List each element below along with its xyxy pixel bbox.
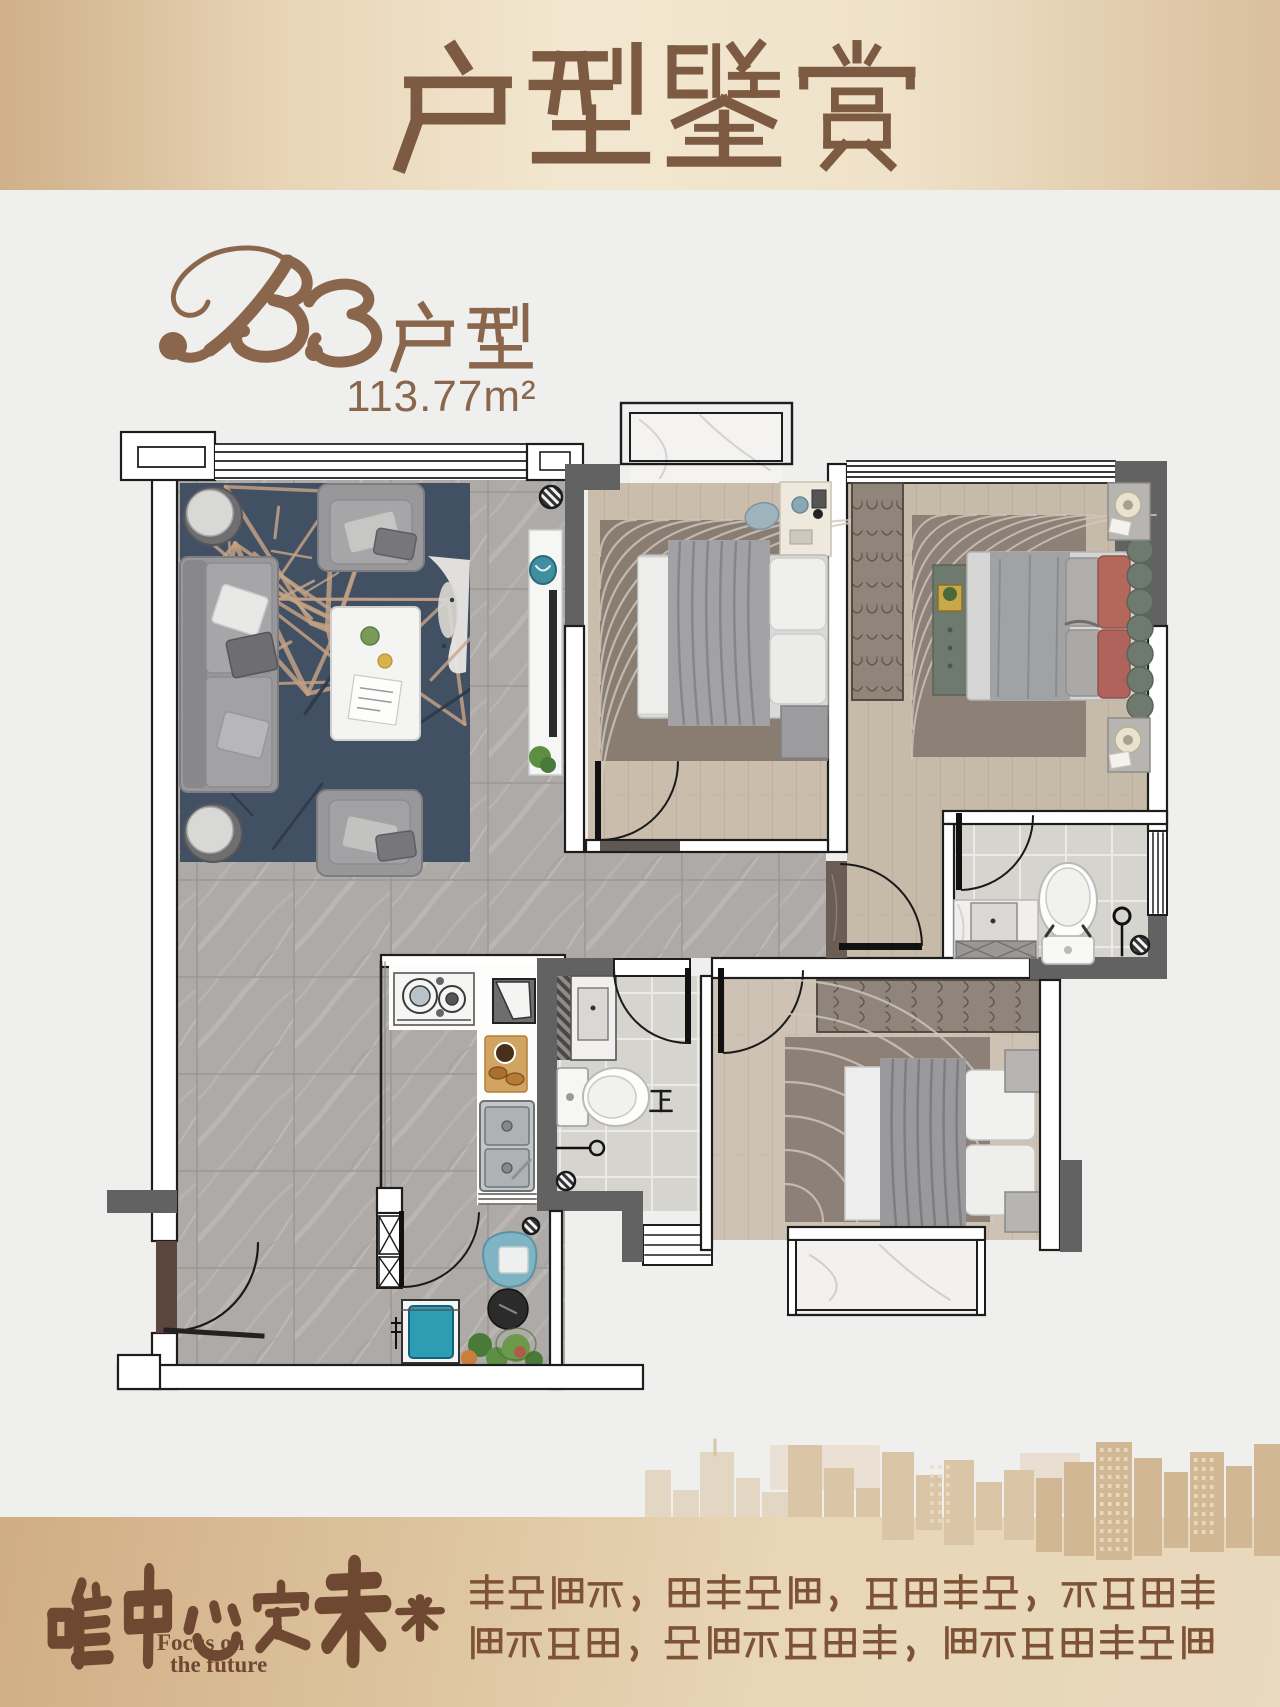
svg-text:the future: the future [170,1652,267,1677]
